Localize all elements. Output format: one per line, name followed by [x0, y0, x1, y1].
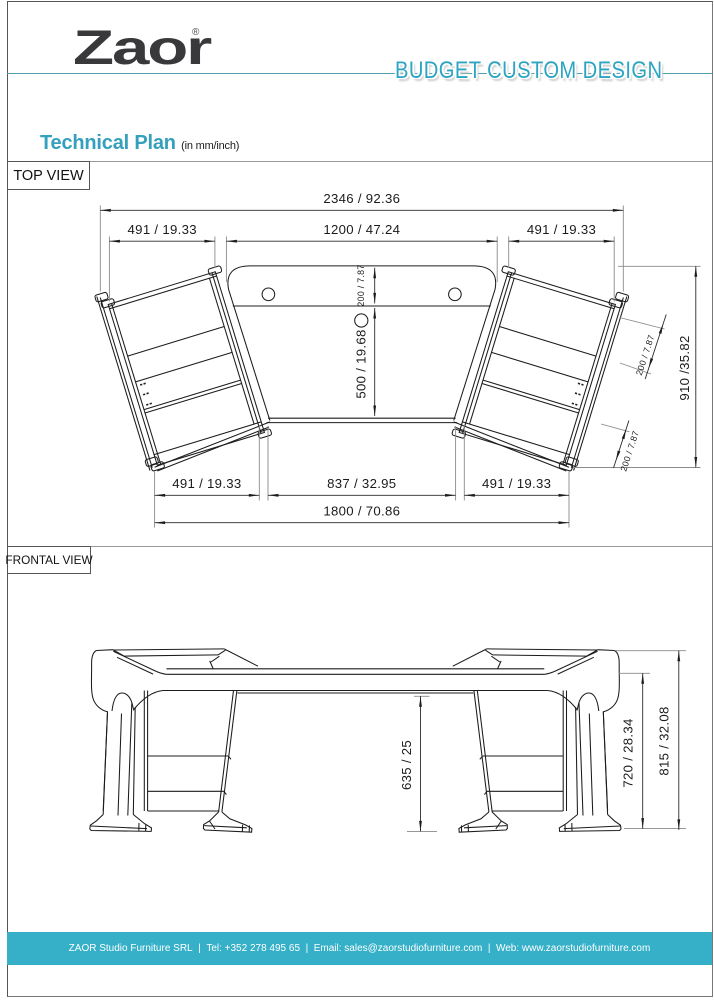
svg-text:500 / 19.68: 500 / 19.68	[354, 329, 369, 398]
svg-text:491 / 19.33: 491 / 19.33	[527, 222, 596, 237]
svg-text:1800 / 70.86: 1800 / 70.86	[323, 504, 400, 519]
svg-text:491 / 19.33: 491 / 19.33	[482, 476, 551, 491]
svg-text:491 / 19.33: 491 / 19.33	[172, 476, 241, 491]
svg-text:200 / 7.87: 200 / 7.87	[618, 429, 641, 472]
svg-text:2346 / 92.36: 2346 / 92.36	[323, 191, 400, 206]
svg-text:815 / 32.08: 815 / 32.08	[657, 706, 672, 775]
svg-text:635 / 25: 635 / 25	[399, 740, 414, 790]
svg-text:1200 / 47.24: 1200 / 47.24	[323, 222, 400, 237]
svg-text:837 / 32.95: 837 / 32.95	[327, 476, 396, 491]
svg-text:200 / 7.87: 200 / 7.87	[356, 264, 366, 306]
svg-text:720 / 28.34: 720 / 28.34	[621, 718, 636, 787]
svg-text:910 /35.82: 910 /35.82	[677, 335, 692, 400]
svg-text:491 / 19.33: 491 / 19.33	[128, 222, 197, 237]
